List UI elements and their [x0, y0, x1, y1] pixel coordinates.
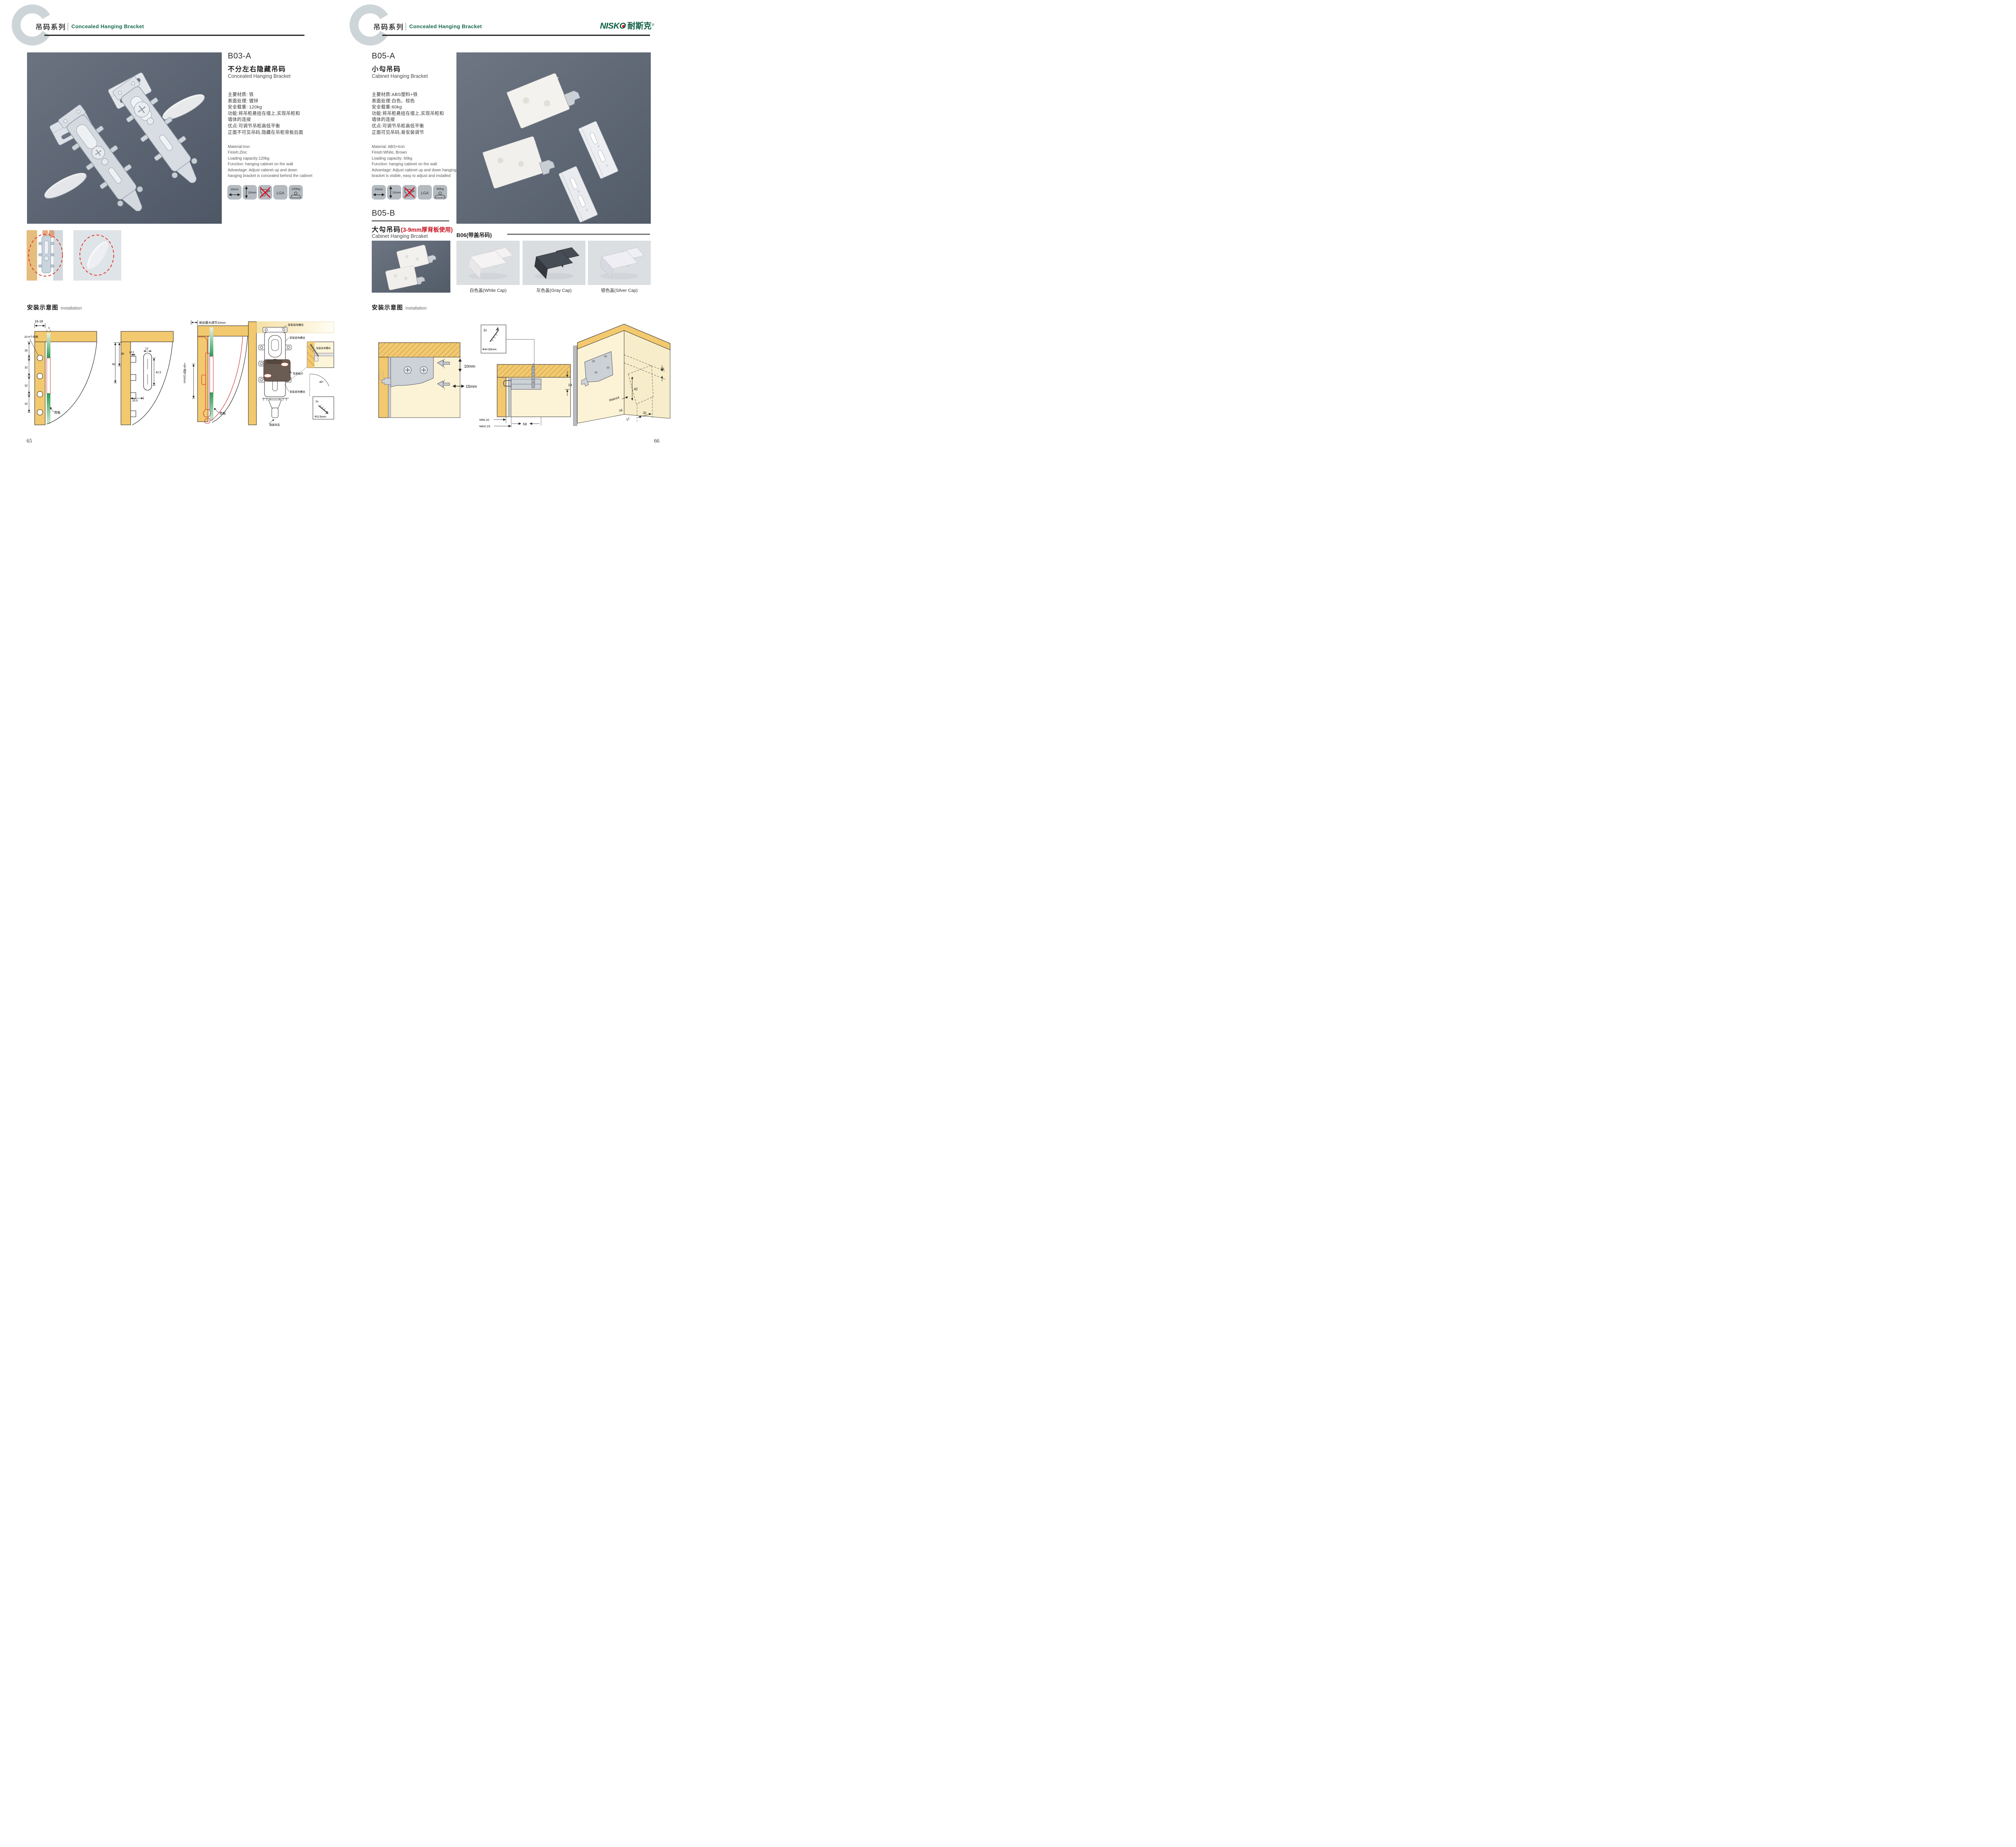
registered-mark: ® — [652, 23, 654, 27]
b06-title: B06(带盖吊码) — [456, 231, 492, 239]
page-number-right: 66 — [654, 438, 660, 444]
b03a-install-photo — [27, 230, 63, 281]
svg-text:12: 12 — [145, 347, 148, 350]
product-name-cn: 小勾吊码 — [372, 64, 401, 73]
svg-text:锁紧状态: 锁紧状态 — [269, 423, 280, 426]
load-capacity-icon: 60Kg — [433, 185, 447, 200]
svg-text:2x: 2x — [483, 329, 487, 332]
b06-rule — [507, 234, 650, 235]
cap-label: 白色盖(White Cap) — [456, 287, 520, 293]
b03a-photo-art — [27, 52, 222, 224]
screw-spec-box: 2x Φ4×30mm — [481, 325, 506, 353]
svg-text:58: 58 — [523, 422, 527, 426]
svg-text:上下调节10mm: 上下调节10mm — [183, 363, 186, 383]
spec-line: Material: ABS+Iron — [372, 144, 456, 150]
spec-line: Function: hanging cabinet on the wall — [372, 162, 456, 167]
lga-cert-icon: LGA — [273, 185, 287, 200]
svg-text:60Kg: 60Kg — [437, 187, 444, 191]
spec-icons-row: 10mm 10mm LGA — [227, 185, 303, 200]
product-specs-en: Material:Iron Finish:Zinc Loading capaci… — [228, 144, 312, 179]
svg-text:32: 32 — [25, 366, 28, 369]
product-name-cn: 大勾吊码(3-9mm厚背板使用) — [372, 224, 453, 234]
spec-line: 功能:将吊柜悬挂在墙上,实现吊柜和 — [372, 111, 444, 117]
installation-title: 安装示意图Installation — [372, 303, 427, 312]
svg-text:15mm: 15mm — [466, 385, 477, 389]
spec-line: Advantage: Adjust cabinet up and down ha… — [372, 168, 456, 173]
product-name-en: Cabinet Hanging Brcaket — [372, 233, 428, 239]
series-title-cn: 吊码系列 — [373, 21, 404, 31]
product-name-en: Cabinet Hanging Bracket — [372, 73, 428, 79]
diagram-section-dims: 2x Φ4×30mm 18 MIN.10 MAX.23 — [478, 319, 575, 430]
product-code: B03-A — [228, 52, 251, 61]
svg-text:10-4个均布: 10-4个均布 — [24, 335, 38, 339]
brand-logo-cn: 耐斯克 — [627, 22, 652, 31]
b05b-name: 大勾吊码 — [372, 226, 401, 233]
svg-text:背板: 背板 — [219, 411, 226, 415]
cap-label: 灰色盖(Gray Cap) — [523, 287, 585, 293]
cap-label: 银色盖(Silver Cap) — [588, 287, 651, 293]
svg-text:120Kg: 120Kg — [292, 187, 300, 191]
height-adjust-icon: 10mm — [387, 185, 401, 200]
series-title-en: Concealed Hanging Bracket — [409, 23, 482, 29]
svg-text:MAX.23: MAX.23 — [479, 424, 490, 428]
svg-text:5: 5 — [48, 327, 50, 330]
no-drill-icon — [258, 185, 272, 200]
spec-line: Material:Iron — [228, 144, 312, 150]
spec-line: 安全载重: 120kg — [228, 104, 303, 111]
diagram-side-section-1: 16-18 5 35 32 32 32 10-4个均布 背板 — [24, 318, 107, 431]
svg-text:专用挂片: 专用挂片 — [293, 372, 303, 375]
spec-line: 墙体的连接 — [228, 117, 303, 123]
svg-text:42.5: 42.5 — [156, 371, 161, 374]
silver-cap-photo — [588, 241, 651, 285]
svg-text:安装自攻螺丝: 安装自攻螺丝 — [316, 347, 331, 350]
product-name-cn: 不分左右隐藏吊码 — [228, 64, 286, 73]
white-cap-photo — [456, 241, 520, 285]
width-adjust-icon: 10mm — [227, 185, 242, 200]
header-divider — [406, 23, 406, 31]
svg-text:35: 35 — [25, 349, 28, 352]
diagram-section-adjust: 10mm 15mm — [373, 319, 478, 430]
b03a-product-photo — [27, 52, 222, 224]
spec-line: 墙体的连接 — [372, 117, 444, 123]
spec-line: 功能:将吊柜悬挂在墙上,实现吊柜和 — [228, 111, 303, 117]
svg-text:前后最大调节10mm: 前后最大调节10mm — [199, 320, 226, 324]
spec-line: Function: hanging cabinet on the wall — [228, 162, 312, 167]
lga-cert-icon: LGA — [418, 185, 432, 200]
spec-line: 主要材质:ABS塑料+铁 — [372, 92, 444, 98]
svg-text:15mm: 15mm — [375, 187, 383, 191]
diagram-bracket-front: 安装自攻螺丝 安装自攻螺丝 安装自攻螺丝 专用挂片 锁紧状态 安装自攻螺丝 — [246, 318, 337, 431]
spec-line: Loading capacity: 60kg — [372, 156, 456, 162]
svg-text:LGA: LGA — [421, 191, 429, 196]
svg-text:Φ3.5mm: Φ3.5mm — [314, 415, 326, 418]
svg-text:LGA: LGA — [277, 191, 285, 196]
product-name-en: Concealed Hanging Bracket — [228, 73, 291, 79]
series-title-cn: 吊码系列 — [35, 21, 66, 31]
svg-text:10mm: 10mm — [464, 364, 475, 369]
spec-line: 安全载重:60kg — [372, 104, 444, 111]
svg-text:17: 17 — [626, 417, 631, 421]
svg-text:60: 60 — [112, 363, 115, 366]
width-adjust-icon: 15mm — [372, 185, 386, 200]
page-number-left: 65 — [27, 438, 32, 444]
svg-text:安装自攻螺丝: 安装自攻螺丝 — [288, 323, 304, 327]
spec-line: 正面不可见吊码,隐藏在吊柜背板后面 — [228, 130, 303, 136]
header-rule — [44, 35, 304, 36]
b05b-product-photo — [372, 241, 450, 293]
product-code: B05-A — [372, 52, 395, 61]
spec-line: 优点:可调节吊柜高低平衡 — [372, 123, 444, 130]
spec-line: Finish:White, Brown — [372, 150, 456, 156]
b05a-product-photo — [456, 52, 651, 224]
svg-text:45°: 45° — [319, 381, 324, 384]
diagram-side-section-3: 前后最大调节10mm 上下调节10mm 背板 — [182, 318, 252, 431]
svg-text:1x: 1x — [315, 399, 319, 403]
svg-text:10mm: 10mm — [230, 187, 239, 191]
logo-red-dot-icon — [622, 25, 625, 27]
svg-text:10mm: 10mm — [248, 191, 256, 194]
product-code: B05-B — [372, 209, 395, 218]
spec-icons-row: 15mm 10mm LGA — [372, 185, 447, 200]
gray-cap-photo — [523, 241, 585, 285]
installation-title-en: Installation — [406, 306, 427, 311]
spec-line: 表面处理: 镀锌 — [228, 98, 303, 105]
svg-text:18: 18 — [568, 383, 572, 387]
no-drill-icon — [402, 185, 417, 200]
diagram-side-section-2: 60 35 12.5 12 42.5 20.5 — [112, 318, 180, 431]
svg-text:16: 16 — [660, 367, 664, 371]
spec-line: bracket is visible, easy to adjust and i… — [372, 173, 456, 179]
spec-line: Advantage: Adjust cabinet up and down — [228, 168, 312, 173]
product-specs-cn: 主要材质: 铁 表面处理: 镀锌 安全载重: 120kg 功能:将吊柜悬挂在墙上… — [228, 92, 303, 136]
height-adjust-icon: 10mm — [243, 185, 257, 200]
spec-line: 优点:可调节吊柜高低平衡 — [228, 123, 303, 130]
svg-text:安装自攻螺丝: 安装自攻螺丝 — [289, 390, 306, 393]
installation-title-cn: 安装示意图 — [372, 305, 403, 311]
spec-line: 正面可见吊码,易安装调节 — [372, 130, 444, 136]
product-specs-cn: 主要材质:ABS塑料+铁 表面处理:白色、棕色 安全载重:60kg 功能:将吊柜… — [372, 92, 444, 136]
series-title-en: Concealed Hanging Bracket — [71, 23, 144, 29]
svg-text:Φ4×30mm: Φ4×30mm — [482, 347, 496, 351]
spec-line: hanging bracket is concealed behind the … — [228, 173, 312, 179]
b05b-note: (3-9mm厚背板使用) — [401, 227, 453, 233]
svg-text:10mm: 10mm — [392, 191, 401, 194]
header-rule — [382, 35, 650, 36]
brand-logo-en: NISKO — [600, 21, 626, 31]
back-panel-icon — [573, 346, 577, 426]
diagram-isometric: 16 42 RMAX4 16 17 32 — [573, 318, 673, 433]
b03a-cap-photo — [73, 230, 121, 281]
spec-line: Finish:Zinc — [228, 150, 312, 156]
svg-text:16-18: 16-18 — [35, 320, 43, 323]
svg-text:32: 32 — [25, 403, 28, 406]
installation-title: 安装示意图Installation — [27, 303, 82, 312]
inset-detail: 安装自攻螺丝 — [307, 342, 334, 368]
product-specs-en: Material: ABS+Iron Finish:White, Brown L… — [372, 144, 456, 179]
screw-spec-box: 1x Φ3.5mm — [313, 397, 334, 419]
spec-line: 主要材质: 铁 — [228, 92, 303, 98]
svg-text:20.5: 20.5 — [132, 399, 138, 402]
catalog-spread: 吊码系列 Concealed Hanging Bracket 吊码系列 Conc… — [0, 0, 676, 462]
svg-text:32: 32 — [25, 385, 28, 387]
svg-text:安装自攻螺丝: 安装自攻螺丝 — [289, 336, 306, 339]
spec-line: 表面处理:白色、棕色 — [372, 98, 444, 105]
svg-text:42: 42 — [634, 387, 638, 391]
spec-line: Loading capacity:120kg — [228, 156, 312, 162]
brand-logo: NISKO耐斯克® — [600, 19, 654, 31]
installation-title-en: Installation — [61, 306, 82, 311]
load-capacity-icon: 120Kg — [289, 185, 303, 200]
svg-text:35: 35 — [121, 353, 124, 356]
svg-text:12.5: 12.5 — [129, 351, 134, 354]
header-divider — [68, 23, 68, 31]
svg-text:MIN.10: MIN.10 — [479, 418, 489, 422]
b05b-underline — [372, 220, 449, 221]
installation-title-cn: 安装示意图 — [27, 305, 58, 311]
svg-text:背板: 背板 — [54, 410, 60, 414]
